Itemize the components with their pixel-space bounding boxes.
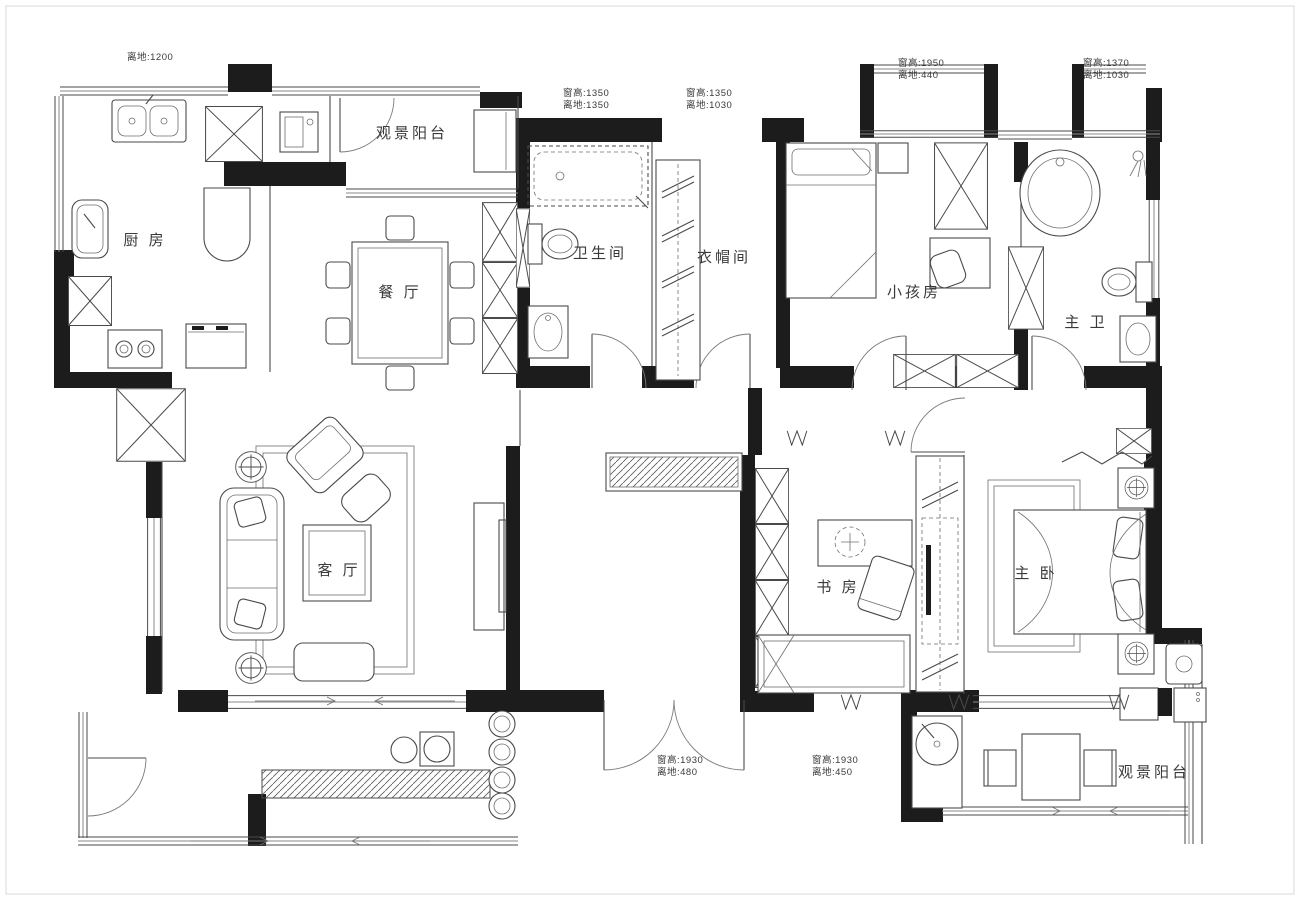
floor-plan-svg: 观景阳台 厨 房 餐 厅 卫生间 衣帽间 小孩房 主 卫 客 厅 书 房 主 卧… (0, 0, 1300, 900)
label-balcony-top: 观景阳台 (376, 125, 448, 142)
study-daybed (758, 635, 910, 693)
label-kids-room: 小孩房 (887, 284, 941, 301)
annotation: 离地:480 (657, 766, 698, 778)
label-bathroom: 卫生间 (573, 245, 627, 262)
kids-desk (928, 238, 990, 290)
kids-bed (786, 143, 876, 298)
annotation: 窗高:1930 (812, 754, 858, 766)
dining-furniture (326, 216, 474, 390)
armchair (283, 414, 367, 497)
bathtub (528, 146, 648, 208)
label-cloakroom: 衣帽间 (697, 249, 751, 266)
shower-head (1130, 151, 1146, 177)
master-sink (1120, 316, 1156, 362)
kids-nightstand (878, 143, 908, 173)
toilet (528, 224, 578, 264)
annotation: 窗高:1350 (563, 87, 609, 99)
stacked-stools (489, 711, 515, 819)
kitchen-furniture (72, 95, 318, 368)
plants (391, 732, 454, 766)
kitchen-peninsula (204, 188, 250, 261)
annotation: 窗高:1930 (657, 754, 703, 766)
label-master-bath: 主 卫 (1064, 314, 1107, 331)
annotation: 离地:1200 (127, 51, 173, 63)
annotation: 离地:450 (812, 766, 853, 778)
entry-shoe-cabinet (606, 453, 742, 491)
wardrobe-column (916, 456, 964, 692)
kitchen-basin (72, 200, 108, 258)
bathroom-sink (528, 306, 568, 358)
kitchen-cabinet (186, 324, 246, 368)
annotation: 离地:1350 (563, 99, 609, 111)
side-table-lamp (236, 653, 267, 684)
kitchen-sink (112, 95, 186, 142)
label-living: 客 厅 (317, 562, 360, 579)
label-study: 书 房 (816, 579, 859, 596)
sliding-door-arrows (255, 697, 455, 705)
label-master-bed: 主 卧 (1014, 565, 1057, 582)
cloakroom-wardrobe (656, 160, 700, 380)
kitchen-appliance (280, 112, 318, 152)
side-table-lamp (236, 452, 267, 483)
annotation: 离地:440 (898, 69, 939, 81)
label-dining: 餐 厅 (378, 284, 421, 301)
annotation: 窗高:1370 (1083, 57, 1129, 69)
label-kitchen: 厨 房 (123, 232, 166, 249)
annotation: 离地:1030 (686, 99, 732, 111)
floor-plan-canvas: 观景阳台 厨 房 餐 厅 卫生间 衣帽间 小孩房 主 卫 客 厅 书 房 主 卧… (0, 0, 1300, 900)
master-bathtub (1020, 150, 1100, 236)
annotation: 离地:1030 (1083, 69, 1129, 81)
tv-unit (474, 503, 506, 630)
kitchen-stove (108, 330, 162, 368)
label-balcony-br: 观景阳台 (1118, 764, 1190, 781)
balcony-left-furniture (190, 711, 515, 845)
annotation: 窗高:1950 (898, 57, 944, 69)
master-bed-furniture (988, 452, 1154, 674)
living-furniture (220, 414, 506, 705)
top-balcony-cabinet (474, 110, 516, 172)
radiator-grille (262, 770, 490, 798)
sofa (220, 488, 284, 640)
mop-sink (912, 716, 962, 808)
master-toilet (1102, 262, 1152, 302)
annotation: 窗高:1350 (686, 87, 732, 99)
balcony-table-chairs (984, 734, 1116, 800)
ottoman (338, 470, 395, 526)
tv-bench (294, 643, 374, 681)
